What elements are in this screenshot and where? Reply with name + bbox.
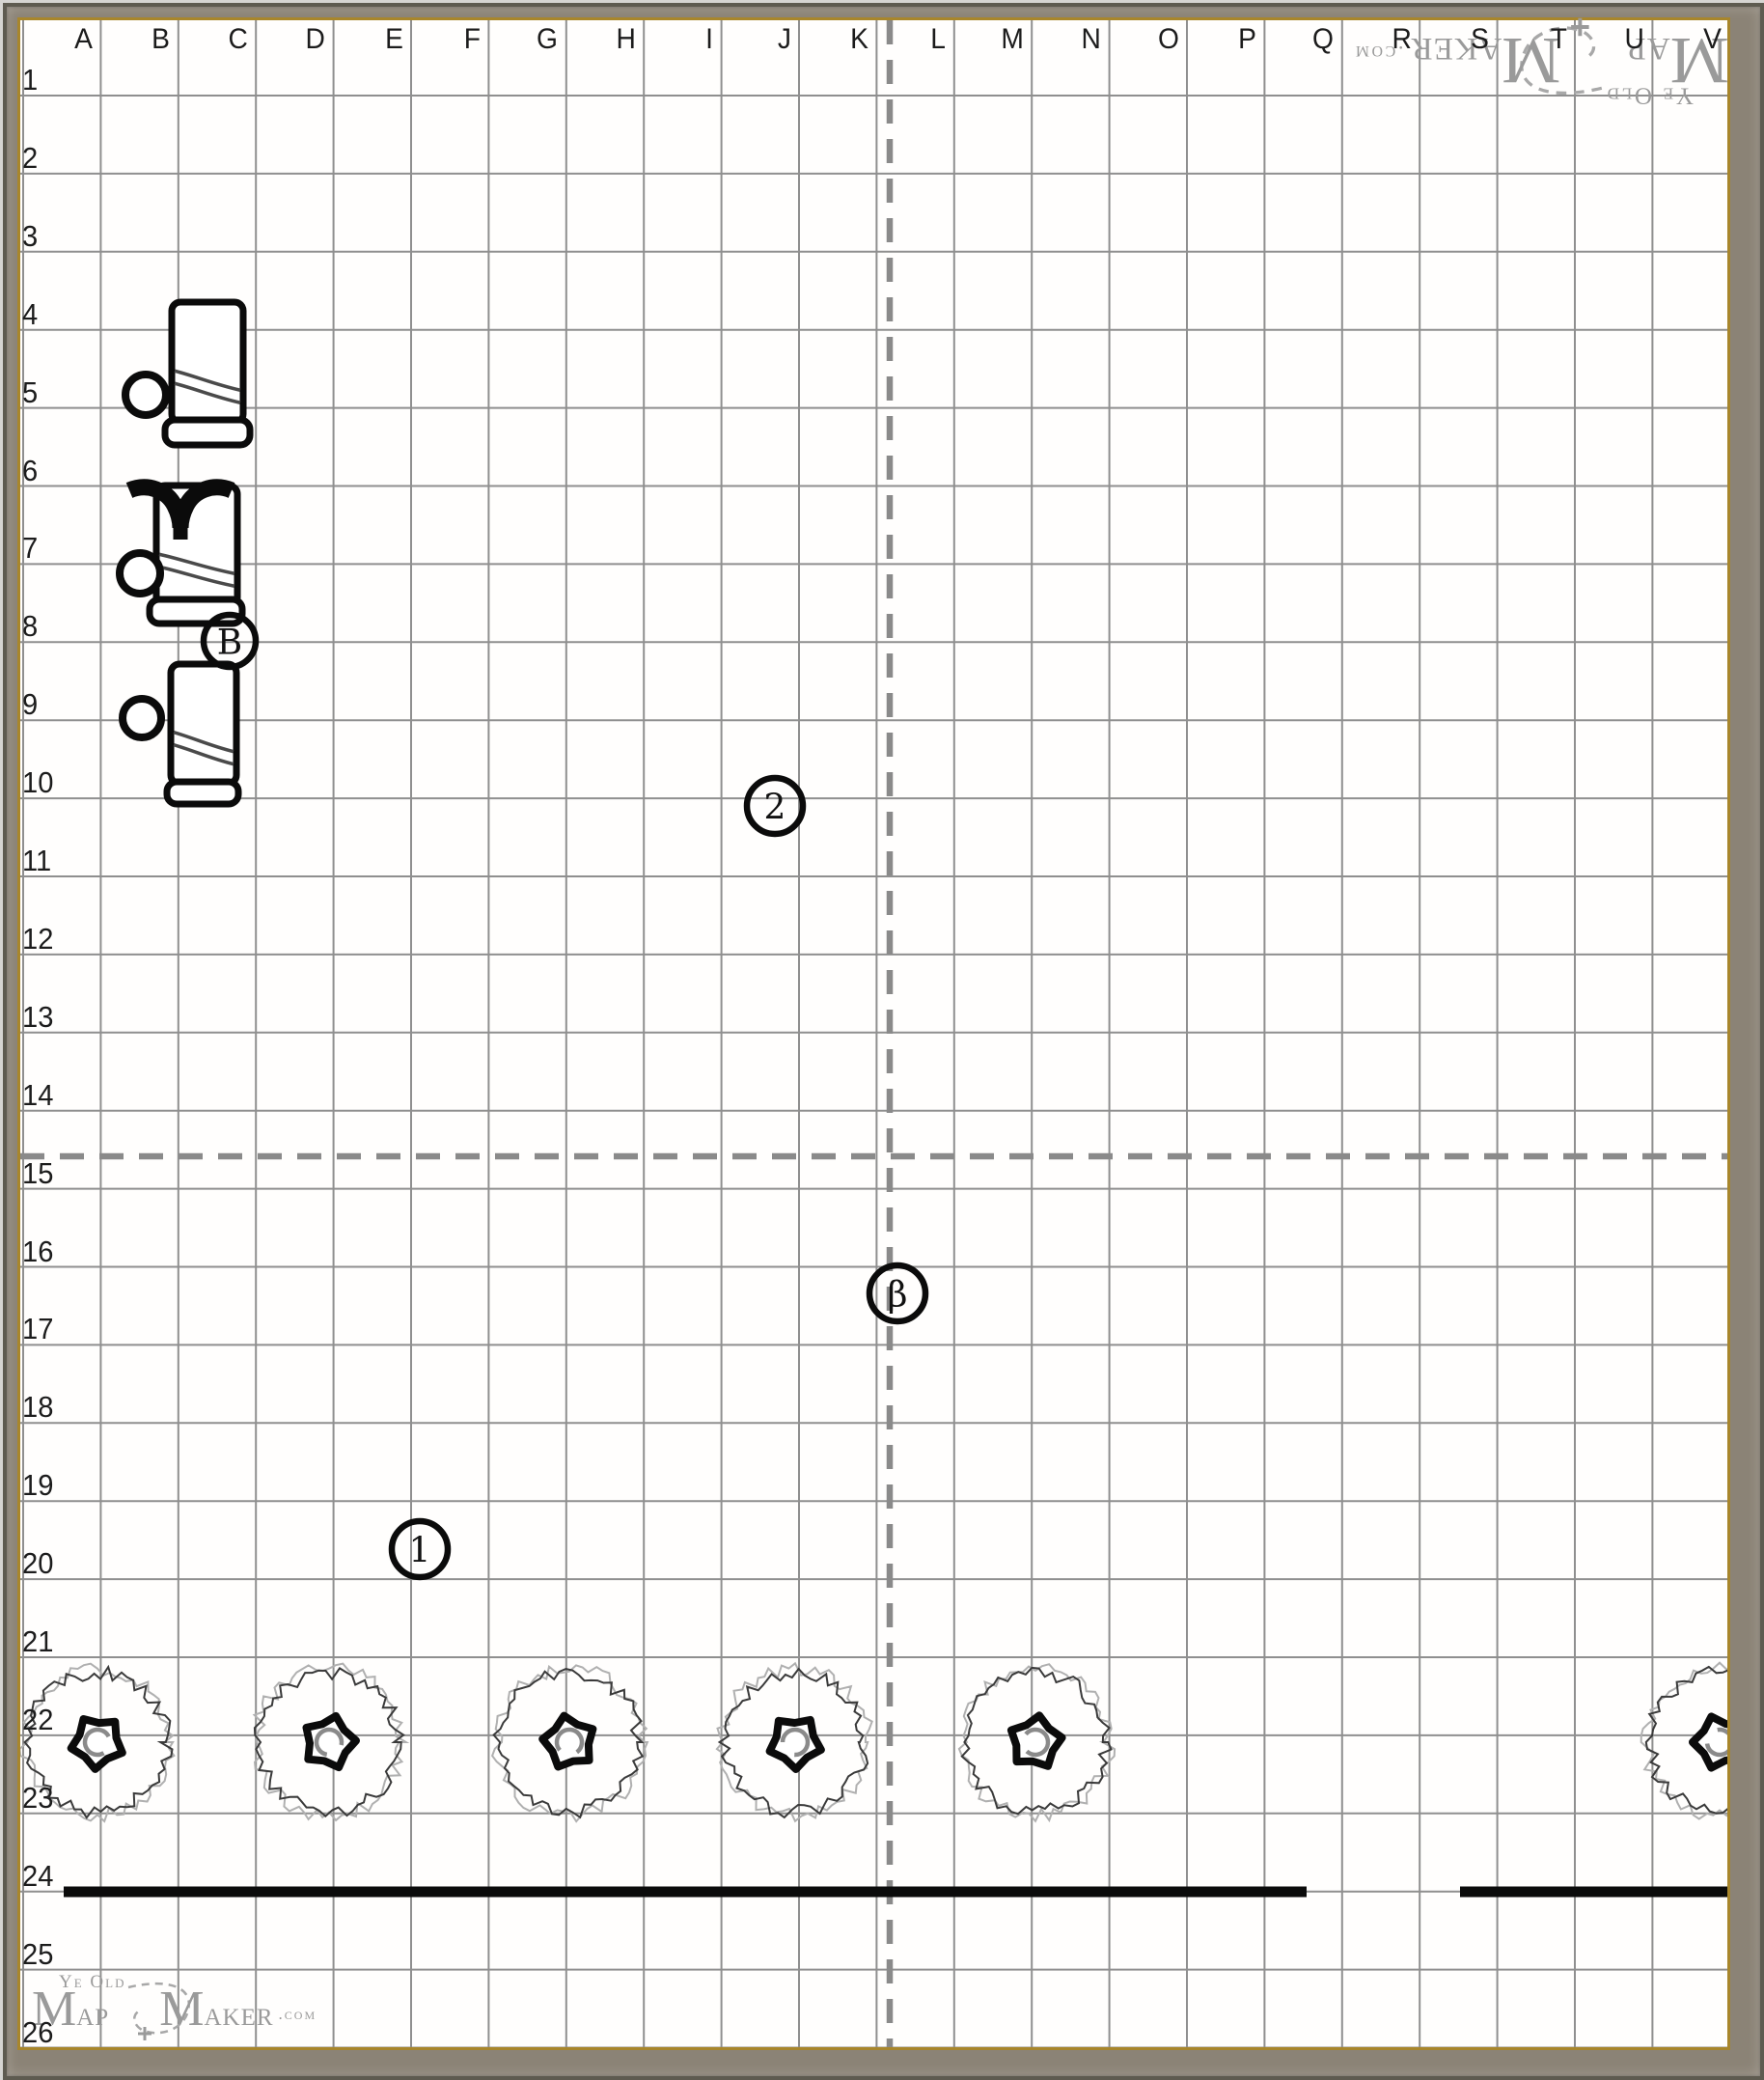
wagon-token[interactable] <box>125 302 250 445</box>
map-markers: B2β1 <box>204 615 925 1577</box>
tree[interactable] <box>1641 1663 1727 1819</box>
wagon-board <box>165 420 250 445</box>
wagon-token[interactable] <box>120 485 242 624</box>
mapmaker-logo-top-right: Ye Old MapMaker.com <box>1309 2 1729 109</box>
map-canvas[interactable]: B2β1 Ye Old MapMaker.com Ye Old MapMaker… <box>17 17 1730 2050</box>
mapmaker-logo-bottom-left: Ye Old MapMaker.com <box>32 1972 350 2053</box>
map-marker[interactable]: 2 <box>747 778 803 834</box>
marker-label: β <box>888 1276 908 1316</box>
wagon-tokens <box>120 302 250 804</box>
wagon-board <box>167 782 238 804</box>
tree-trunk-icon <box>542 1716 593 1767</box>
marker-label: 1 <box>409 1532 431 1571</box>
tree[interactable] <box>255 1664 406 1820</box>
map-page: { "brand": {"ye_old":"Ye Old","map_cap":… <box>0 0 1764 2080</box>
map-marker[interactable]: 1 <box>392 1521 448 1577</box>
tree-trunk-icon <box>71 1719 123 1769</box>
wagon-body <box>171 664 236 784</box>
wagon-wheel-icon <box>125 374 166 415</box>
logo-wordmark: MapMaker.com <box>1353 22 1729 97</box>
tree[interactable] <box>717 1663 872 1821</box>
map-marker[interactable]: B <box>204 615 256 667</box>
tree[interactable] <box>492 1665 648 1821</box>
grid-lines <box>20 20 1727 2047</box>
tree-trunk-icon <box>1011 1715 1062 1766</box>
wagon-wheel-icon <box>120 553 160 594</box>
tree-trunk-icon <box>1693 1716 1727 1767</box>
marker-label: 2 <box>764 789 786 828</box>
wagon-wheel-icon <box>123 699 161 737</box>
marker-label: B <box>217 624 242 663</box>
wagon-body <box>172 302 243 423</box>
wagon-token[interactable] <box>123 664 238 804</box>
tree-tokens <box>20 1663 1727 1822</box>
map-marker[interactable]: β <box>869 1265 925 1321</box>
tree-trunk-icon <box>307 1716 357 1767</box>
logo-wordmark: MapMaker.com <box>32 1982 317 2038</box>
wagon-board <box>150 599 242 624</box>
tree[interactable] <box>20 1664 174 1821</box>
section-dividers <box>20 20 1727 2047</box>
tree-trunk-icon <box>770 1720 821 1769</box>
tree[interactable] <box>959 1664 1115 1821</box>
map-drawing: B2β1 <box>20 20 1727 2047</box>
